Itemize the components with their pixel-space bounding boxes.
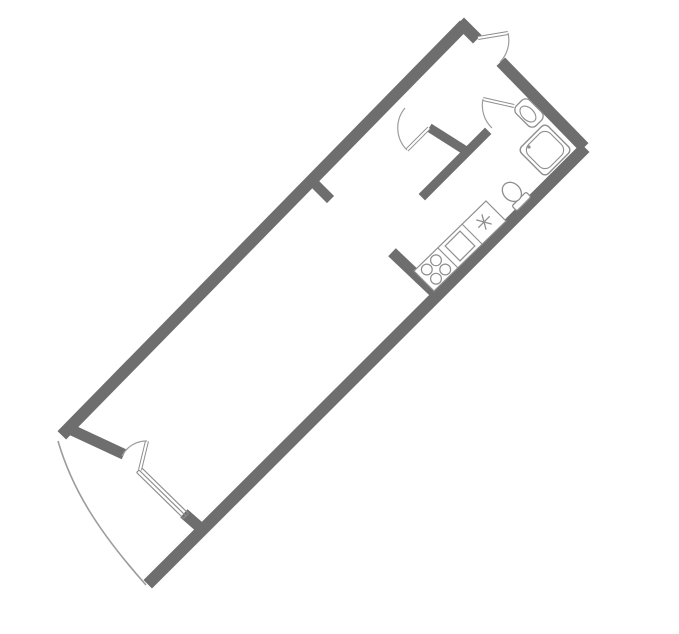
entrance-door-swing-arc (500, 33, 509, 62)
hall-partition (433, 130, 463, 149)
balcony-window-line-2 (137, 473, 184, 519)
hall-room-door-leaf-core (407, 128, 429, 150)
bathroom-door-swing-arc (482, 99, 492, 128)
floor-plan-svg (0, 0, 679, 634)
bottom-end-wall-corner-piece (76, 432, 119, 452)
top-end-wall-left-piece (464, 26, 473, 35)
floor-plan (0, 0, 679, 634)
bottom-end-wall-window-jamb (188, 517, 196, 524)
balcony-door-leaf-core (140, 441, 147, 470)
left-exterior-wall (66, 29, 460, 431)
left-wall-stub (318, 187, 327, 196)
balcony-window-line-1 (139, 470, 186, 516)
hall-room-door-swing-arc (398, 108, 407, 150)
shower-tray-drain (527, 145, 530, 148)
bathroom-door-leaf-core (483, 99, 514, 106)
balcony-outline (58, 441, 146, 585)
right-exterior-wall (152, 152, 581, 580)
balcony-window-line-0 (141, 468, 188, 514)
